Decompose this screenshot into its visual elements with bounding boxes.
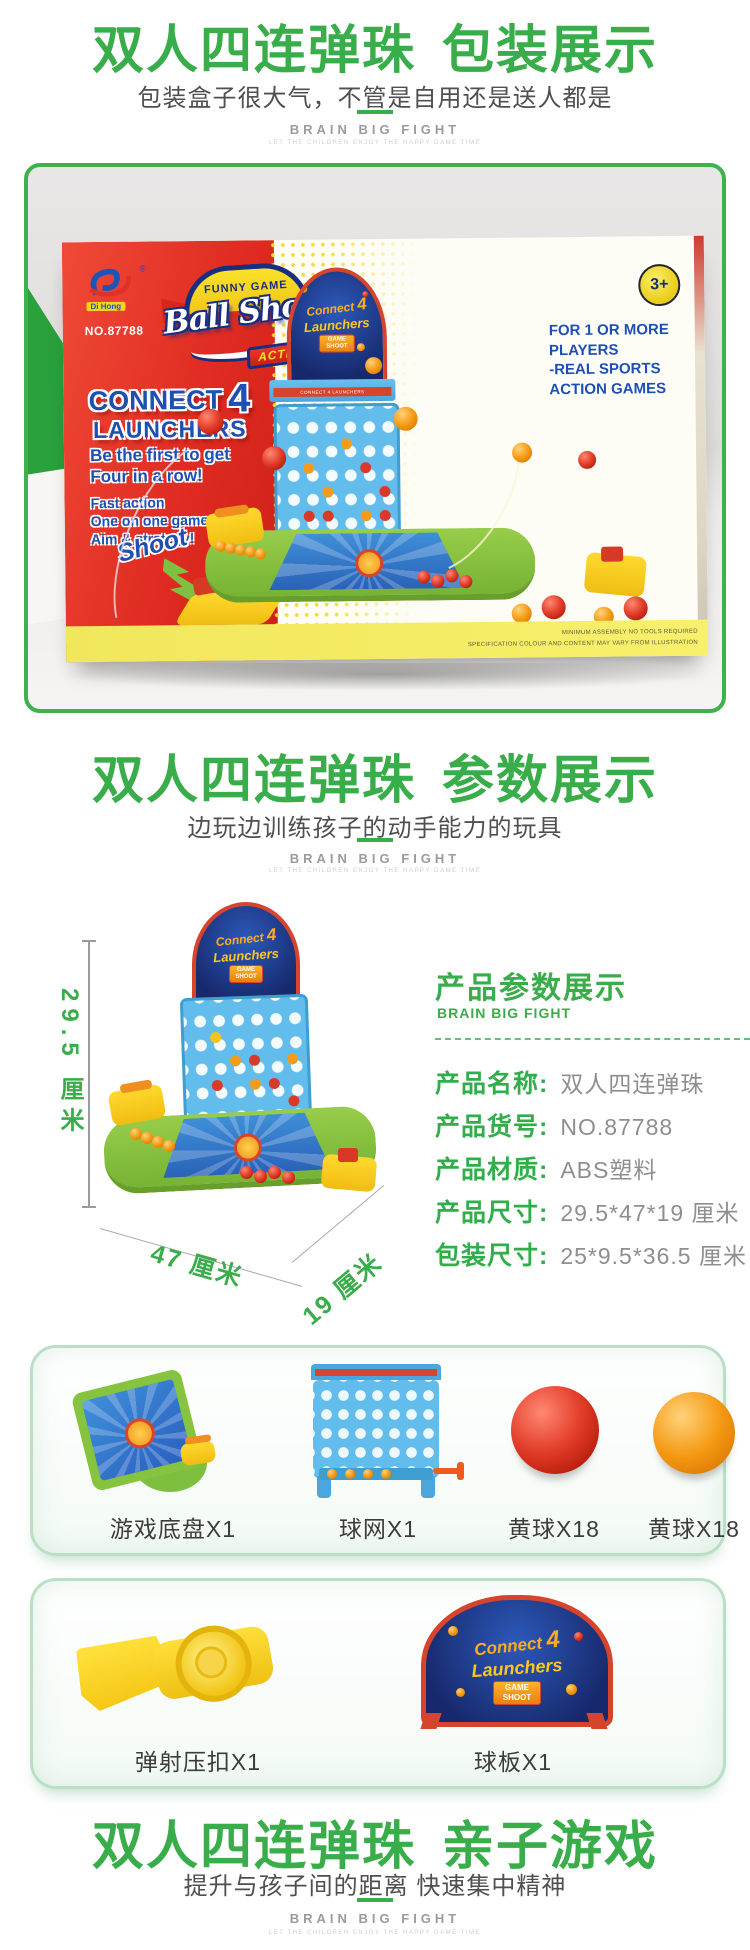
- divider-dash: [357, 838, 393, 842]
- box-bottom-strip: MINIMUM ASSEMBLY NO TOOLS REQUIRED SPECI…: [66, 620, 708, 663]
- section-family-subtitle: 提升与孩子间的距离 快速集中精神: [0, 1866, 750, 1901]
- age-badge: 3+: [638, 264, 680, 306]
- box-shadow: [54, 663, 714, 691]
- brand-tagline: LET THE CHILDREN ENJOY THE HAPPY GAME TI…: [0, 140, 750, 146]
- components-box-2: Connect 4 Launchers GAMESHOOT 弹射压扣X1 球板X…: [30, 1578, 726, 1789]
- component-arch-board: Connect 4 Launchers GAMESHOOT: [421, 1595, 611, 1735]
- dimension-height-label: 29.5 厘米: [52, 988, 87, 1138]
- spec-panel-brand: BRAIN BIG FIGHT: [437, 1005, 571, 1021]
- divider-dash: [357, 1898, 393, 1902]
- brand-line: BRAIN BIG FIGHT: [0, 1911, 750, 1926]
- section-accent: 参数展示: [442, 752, 658, 810]
- flying-ball: [578, 451, 596, 469]
- toy-scorebar: CONNECT 4 LAUNCHERS: [269, 379, 395, 402]
- components-box-1: 游戏底盘X1 球网X1 黄球X18 黄球X18: [30, 1345, 726, 1556]
- logo-mark-icon: [80, 266, 138, 303]
- toy-arch-sign: Connect 4 Launchers GAMESHOOT: [192, 902, 300, 1006]
- spec-row: 产品货号:NO.87788: [435, 1107, 750, 1141]
- divider-dash: [357, 110, 393, 114]
- registered-mark: ®: [139, 263, 146, 273]
- component-launcher-clip: [64, 1573, 313, 1763]
- dimension-depth-label: 19 厘米: [294, 1244, 390, 1332]
- spec-row: 产品材质:ABS塑料: [435, 1150, 750, 1184]
- brand-tagline: LET THE CHILDREN ENJOY THE HAPPY GAME TI…: [0, 1930, 750, 1936]
- item-number: NO.87788: [85, 324, 144, 339]
- game-shoot-badge: GAMESHOOT: [319, 334, 355, 353]
- component-game-base: [73, 1376, 223, 1506]
- dimension-width-label: 47 厘米: [147, 1234, 248, 1295]
- fine-print: MINIMUM ASSEMBLY NO TOOLS REQUIRED SPECI…: [468, 627, 698, 651]
- section-packaging-subtitle: 包装盒子很大气，不管是自用还是送人都是: [0, 78, 750, 113]
- flying-ball: [512, 442, 532, 462]
- box-side-edge: [694, 236, 708, 656]
- brand-tagline: LET THE CHILDREN ENJOY THE HAPPY GAME TI…: [0, 868, 750, 874]
- section-packaging-title: 双人四连弹珠包装展示: [0, 8, 750, 83]
- flying-ball: [198, 409, 224, 435]
- section-accent: 包装展示: [442, 22, 658, 80]
- product-box-front: ® Di Hong NO.87788 FUNNY GAME Ball Shoot…: [62, 236, 708, 663]
- component-ball-net: [311, 1364, 446, 1514]
- component-label: 黄球X18: [614, 1510, 750, 1544]
- component-label: 黄球X18: [474, 1510, 634, 1544]
- component-label: 游戏底盘X1: [93, 1510, 253, 1544]
- dimension-height-line: [88, 940, 90, 1208]
- toy-grid: [274, 403, 401, 544]
- spec-toy-illustration: Connect 4 Launchers GAMESHOOT: [100, 890, 390, 1230]
- product-detail-page: 双人四连弹珠包装展示 包装盒子很大气，不管是自用还是送人都是 BRAIN BIG…: [0, 0, 750, 1950]
- section-specs-title: 双人四连弹珠参数展示: [0, 738, 750, 813]
- spec-row: 包装尺寸:25*9.5*36.5 厘米: [435, 1236, 750, 1270]
- players-text: FOR 1 OR MORE PLAYERS -REAL SPORTS ACTIO…: [549, 320, 700, 400]
- product-name: 双人四连弹珠: [92, 752, 416, 810]
- component-label: 球板X1: [433, 1743, 593, 1777]
- component-orange-ball: [653, 1392, 735, 1474]
- flying-ball: [394, 407, 418, 431]
- product-name: 双人四连弹珠: [92, 22, 416, 80]
- brand-line: BRAIN BIG FIGHT: [0, 851, 750, 866]
- brand-line: BRAIN BIG FIGHT: [0, 122, 750, 137]
- box-headline: CONNECT4 LAUNCHERS: [63, 374, 276, 442]
- playfield-target: [355, 549, 383, 577]
- flying-ball: [365, 357, 382, 374]
- component-label: 弹射压扣X1: [118, 1743, 278, 1777]
- spec-panel-title: 产品参数展示: [435, 963, 627, 1007]
- flying-ball: [262, 446, 286, 470]
- spec-row: 产品名称:双人四连弹珠: [435, 1064, 750, 1098]
- spec-dashed-divider: [435, 1038, 750, 1040]
- spec-row: 产品尺寸:29.5*47*19 厘米: [435, 1193, 750, 1227]
- component-red-ball: [511, 1386, 599, 1474]
- toy-grid: [180, 994, 312, 1128]
- component-label: 球网X1: [298, 1510, 458, 1544]
- logo-brand-label: Di Hong: [86, 302, 125, 311]
- manufacturer-logo: ® Di Hong: [80, 265, 147, 318]
- packaging-photo: ® Di Hong NO.87788 FUNNY GAME Ball Shoot…: [24, 163, 726, 713]
